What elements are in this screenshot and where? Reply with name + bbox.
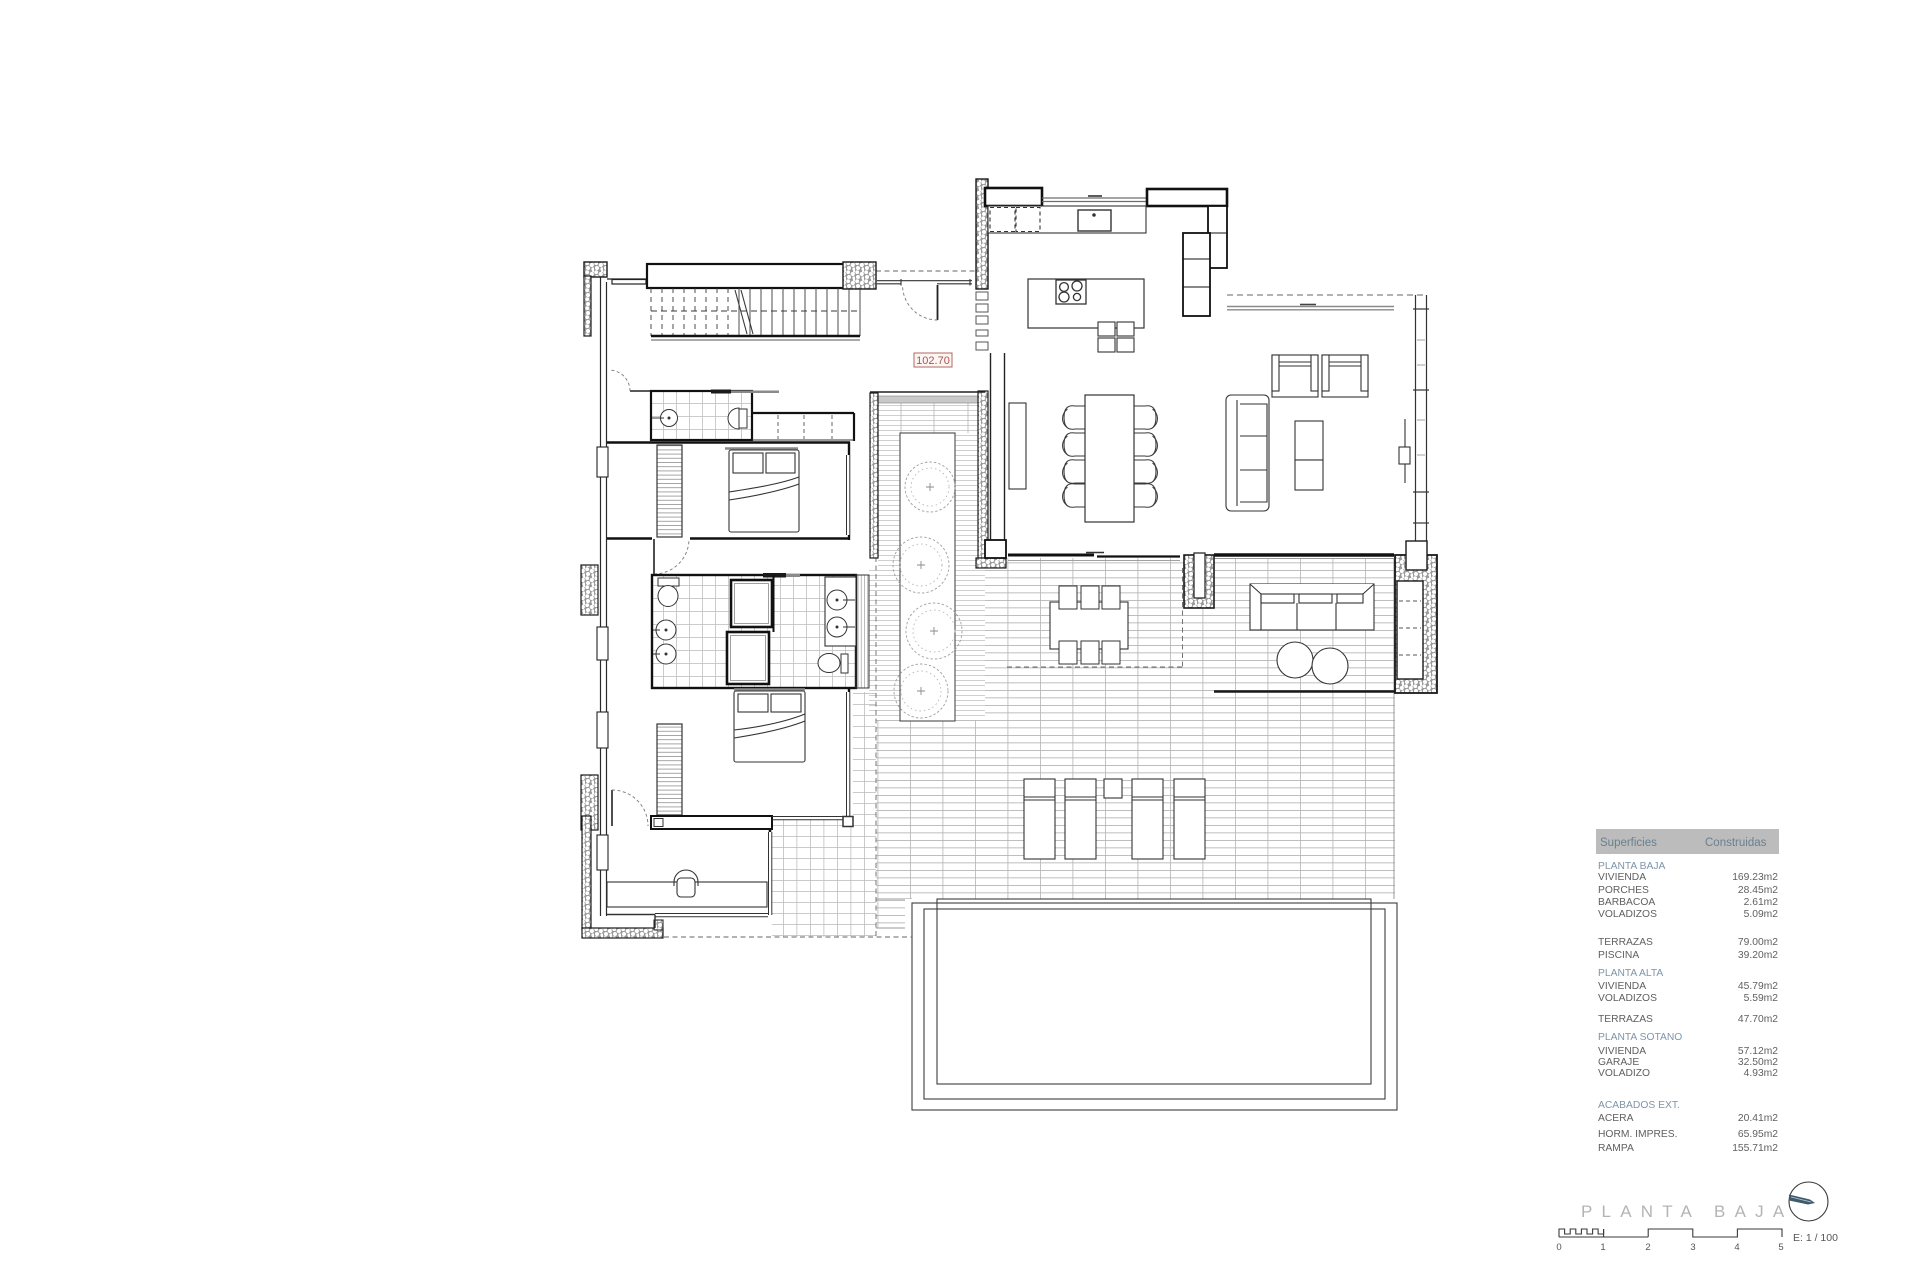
- svg-text:65.95m2: 65.95m2: [1738, 1129, 1778, 1140]
- svg-text:VOLADIZO: VOLADIZO: [1598, 1068, 1650, 1079]
- svg-text:ACERA: ACERA: [1598, 1113, 1634, 1124]
- svg-text:3: 3: [1690, 1242, 1695, 1253]
- svg-text:79.00m2: 79.00m2: [1738, 937, 1778, 948]
- svg-text:TERRAZAS: TERRAZAS: [1598, 937, 1653, 948]
- svg-text:BARBACOA: BARBACOA: [1598, 897, 1655, 908]
- svg-text:47.70m2: 47.70m2: [1738, 1014, 1778, 1025]
- svg-text:5.09m2: 5.09m2: [1744, 909, 1779, 920]
- svg-text:TERRAZAS: TERRAZAS: [1598, 1014, 1653, 1025]
- svg-text:PLANTA SOTANO: PLANTA SOTANO: [1598, 1032, 1682, 1043]
- svg-text:39.20m2: 39.20m2: [1738, 950, 1778, 961]
- svg-text:0: 0: [1556, 1242, 1561, 1253]
- svg-text:VIVIENDA: VIVIENDA: [1598, 981, 1646, 992]
- svg-text:HORM. IMPRES.: HORM. IMPRES.: [1598, 1129, 1678, 1140]
- svg-text:5: 5: [1778, 1242, 1783, 1253]
- svg-text:Superficies: Superficies: [1600, 837, 1657, 849]
- svg-text:E: 1 / 100: E: 1 / 100: [1793, 1232, 1838, 1244]
- svg-text:32.50m2: 32.50m2: [1738, 1057, 1778, 1068]
- svg-text:RAMPA: RAMPA: [1598, 1143, 1634, 1154]
- svg-text:PISCINA: PISCINA: [1598, 950, 1639, 961]
- svg-text:4.93m2: 4.93m2: [1744, 1068, 1779, 1079]
- svg-text:102.70: 102.70: [916, 355, 950, 367]
- svg-text:VIVIENDA: VIVIENDA: [1598, 1046, 1646, 1057]
- svg-text:5.59m2: 5.59m2: [1744, 993, 1779, 1004]
- svg-text:4: 4: [1734, 1242, 1739, 1253]
- svg-text:1: 1: [1600, 1242, 1605, 1253]
- svg-text:57.12m2: 57.12m2: [1738, 1046, 1778, 1057]
- svg-text:VOLADIZOS: VOLADIZOS: [1598, 993, 1657, 1004]
- svg-text:GARAJE: GARAJE: [1598, 1057, 1639, 1068]
- svg-text:PLANTA ALTA: PLANTA ALTA: [1598, 968, 1663, 979]
- svg-text:Construidas: Construidas: [1705, 837, 1767, 849]
- svg-text:PLANTA BAJA: PLANTA BAJA: [1598, 861, 1665, 872]
- svg-text:28.45m2: 28.45m2: [1738, 885, 1778, 896]
- svg-text:2.61m2: 2.61m2: [1744, 897, 1779, 908]
- svg-text:VIVIENDA: VIVIENDA: [1598, 872, 1646, 883]
- svg-text:PLANTA BAJA: PLANTA BAJA: [1581, 1202, 1793, 1221]
- svg-text:45.79m2: 45.79m2: [1738, 981, 1778, 992]
- svg-text:20.41m2: 20.41m2: [1738, 1113, 1778, 1124]
- svg-text:155.71m2: 155.71m2: [1732, 1143, 1778, 1154]
- svg-text:PORCHES: PORCHES: [1598, 885, 1649, 896]
- svg-text:ACABADOS EXT.: ACABADOS EXT.: [1598, 1100, 1680, 1111]
- svg-text:169.23m2: 169.23m2: [1732, 872, 1778, 883]
- svg-text:2: 2: [1645, 1242, 1650, 1253]
- svg-text:VOLADIZOS: VOLADIZOS: [1598, 909, 1657, 920]
